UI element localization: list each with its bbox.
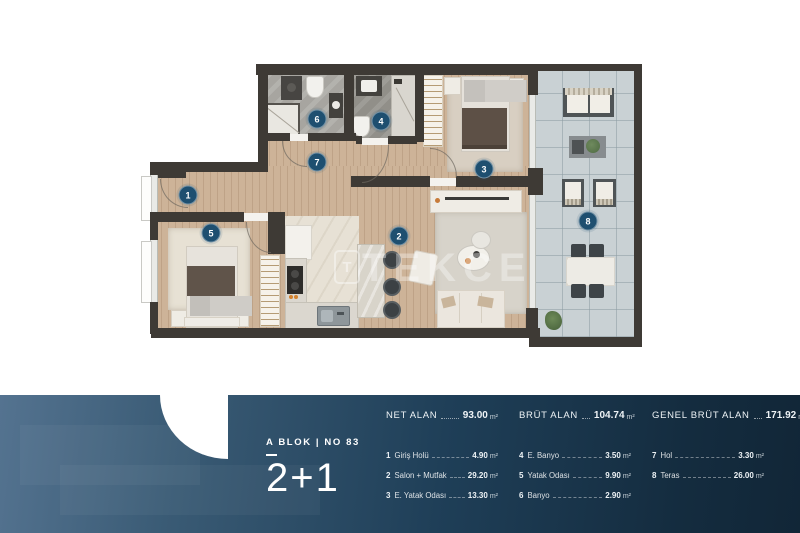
- summary-value: 93.00: [463, 410, 488, 421]
- door-threshold: [244, 213, 268, 221]
- wall: [256, 64, 535, 75]
- room-area: 9.90: [605, 471, 621, 480]
- floor-plan-page: 1 2 3 4 5 6 7 8 T TEKCE A BLOK | NO 83 2…: [0, 0, 800, 533]
- room-row: 6 Banyo 2.90 m²: [519, 488, 631, 500]
- unit-identity: A BLOK | NO 83 2+1: [266, 437, 360, 498]
- room-row: 3 E. Yatak Odası 13.30 m²: [386, 488, 498, 500]
- sofa: [437, 290, 505, 328]
- chair-texture: [596, 199, 613, 205]
- dining-chair: [571, 284, 586, 298]
- room-name: E. Yatak Odası: [394, 491, 446, 500]
- room-row: 1 Giriş Holü 4.90 m²: [386, 448, 498, 460]
- chair-cushion: [565, 182, 581, 199]
- area-table: NET ALAN 93.00 m² BRÜT ALAN 104.74 m² GE…: [386, 410, 786, 520]
- wall: [258, 64, 268, 172]
- summary-unit: m²: [490, 414, 498, 421]
- dashed-leader: [675, 457, 735, 458]
- room-badge: 4: [372, 112, 391, 131]
- room-unit: m²: [623, 453, 631, 460]
- bed-foot: [462, 145, 507, 149]
- room-number: 2: [386, 471, 390, 480]
- info-panel: A BLOK | NO 83 2+1 NET ALAN 93.00 m² BRÜ…: [0, 395, 800, 533]
- room-area: 29.20: [468, 471, 488, 480]
- room-number: 5: [519, 471, 523, 480]
- terrace-parapet: [634, 64, 642, 347]
- watermark-text: TEKCE: [362, 248, 533, 288]
- summary-gross-area: BRÜT ALAN 104.74 m²: [519, 410, 631, 421]
- entry-door-leaf: [158, 172, 186, 178]
- bed-pillows: [464, 80, 527, 102]
- room-name: Banyo: [527, 491, 549, 500]
- dining-chair: [571, 244, 586, 258]
- vanity: [356, 76, 382, 96]
- watermark-logo: T: [334, 250, 360, 284]
- wall: [344, 75, 354, 140]
- wall: [308, 133, 356, 141]
- room-badge: 5: [202, 224, 221, 243]
- outdoor-coffee-table: [569, 136, 606, 158]
- wall: [456, 176, 535, 187]
- summary-label: BRÜT ALAN: [519, 410, 578, 421]
- kitchen-sink: [317, 306, 350, 326]
- dotted-leader: [582, 418, 590, 419]
- summary-general-gross-area: GENEL BRÜT ALAN 171.92 m²: [652, 410, 782, 421]
- room-name: Yatak Odası: [527, 471, 569, 480]
- room-number: 6: [519, 491, 523, 500]
- room-area: 4.90: [472, 451, 488, 460]
- washing-machine: [281, 76, 302, 100]
- summary-value: 171.92: [766, 410, 797, 421]
- bar-stool: [383, 301, 401, 319]
- room-unit: m²: [490, 453, 498, 460]
- room-name: Salon + Mutfak: [394, 471, 446, 480]
- wall: [150, 162, 268, 172]
- outdoor-chair: [593, 179, 616, 207]
- room-area: 3.30: [738, 451, 754, 460]
- sofa-seam: [459, 293, 460, 323]
- door-threshold: [430, 178, 456, 186]
- room-badge: 6: [308, 110, 327, 129]
- wall: [150, 220, 158, 240]
- room-unit: m²: [623, 493, 631, 500]
- wall: [150, 212, 244, 222]
- faucet: [337, 312, 344, 315]
- fruit: [289, 295, 293, 299]
- shower-line: [264, 106, 299, 134]
- dashed-leader: [553, 497, 603, 498]
- console-decor: [435, 198, 440, 203]
- washer-door: [287, 83, 296, 92]
- room-badge: 2: [390, 227, 409, 246]
- room-name: Teras: [660, 471, 679, 480]
- dining-chair: [589, 284, 604, 298]
- room-badge: 3: [475, 160, 494, 179]
- wall: [388, 136, 417, 144]
- wall: [528, 168, 543, 195]
- room-row: 7 Hol 3.30 m²: [652, 448, 764, 460]
- dashed-leader: [573, 477, 602, 478]
- shower-head: [394, 79, 402, 84]
- outdoor-chair: [562, 179, 584, 207]
- room-unit: m²: [623, 473, 631, 480]
- towel-shelf: [423, 75, 443, 147]
- room-row: 8 Teras 26.00 m²: [652, 468, 764, 480]
- sofa-pillow: [441, 296, 456, 309]
- room-number: 8: [652, 471, 656, 480]
- dashed-leader: [449, 497, 465, 498]
- bed-blanket: [462, 108, 507, 146]
- window-sill: [141, 241, 152, 303]
- tv: [445, 197, 509, 200]
- summary-label: NET ALAN: [386, 410, 437, 421]
- room-badge: 1: [179, 186, 198, 205]
- room-unit: m²: [490, 473, 498, 480]
- room-number: 1: [386, 451, 390, 460]
- kitchen-shelf: [260, 255, 280, 327]
- wall: [151, 328, 540, 338]
- block-and-unit-number: A BLOK | NO 83: [266, 437, 360, 448]
- summary-net-area: NET ALAN 93.00 m²: [386, 410, 498, 421]
- dashed-leader: [683, 477, 731, 478]
- terrace-parapet: [535, 64, 642, 71]
- room-row: 2 Salon + Mutfak 29.20 m²: [386, 468, 498, 480]
- sofa-cushion: [567, 95, 588, 113]
- sink-basin: [321, 310, 333, 322]
- room-number: 7: [652, 451, 656, 460]
- master-bed: [461, 76, 510, 152]
- sofa-cushion: [590, 95, 610, 113]
- fruit-bowl: [289, 295, 299, 300]
- dining-table: [566, 257, 615, 286]
- room-name: Giriş Holü: [394, 451, 428, 460]
- room-badge: 7: [308, 153, 327, 172]
- plan-type: 2+1: [266, 458, 360, 498]
- nightstand: [444, 77, 461, 95]
- terrace-parapet: [529, 337, 642, 347]
- floor-plan: 1 2 3 4 5 6 7 8 T TEKCE: [0, 0, 800, 395]
- bed-pillows: [190, 296, 252, 316]
- wall: [268, 133, 290, 141]
- room-area: 13.30: [468, 491, 488, 500]
- room-area: 3.50: [605, 451, 621, 460]
- bed-blanket: [187, 266, 235, 296]
- window: [529, 95, 536, 168]
- room-area: 26.00: [734, 471, 754, 480]
- bed-headboard: [184, 317, 240, 327]
- room-badge: 8: [579, 212, 598, 231]
- dotted-leader: [441, 418, 458, 419]
- door-threshold: [290, 134, 308, 141]
- chair-texture: [565, 199, 581, 205]
- terrace-plant: [545, 311, 562, 330]
- fruit: [294, 295, 298, 299]
- room-row: 4 E. Banyo 3.50 m²: [519, 448, 631, 460]
- room-area: 2.90: [605, 491, 621, 500]
- outdoor-sofa: [563, 88, 614, 117]
- sofa-pillow: [477, 296, 494, 308]
- room-row: 5 Yatak Odası 9.90 m²: [519, 468, 631, 480]
- room-unit: m²: [756, 473, 764, 480]
- toilet: [306, 76, 324, 98]
- wall: [526, 308, 538, 337]
- plant-pot: [586, 139, 600, 153]
- wall: [150, 302, 158, 334]
- door-threshold: [362, 138, 388, 145]
- summary-label: GENEL BRÜT ALAN: [652, 410, 750, 421]
- kitchen-tall-cabinet: [285, 225, 312, 260]
- room-number: 4: [519, 451, 523, 460]
- burner: [291, 270, 299, 278]
- cooktop: [287, 266, 303, 294]
- room-number: 3: [386, 491, 390, 500]
- tv-console: [430, 190, 522, 213]
- dashed-leader: [562, 457, 602, 458]
- tub-line: [396, 87, 415, 121]
- chair-cushion: [596, 182, 613, 199]
- summary-unit: m²: [627, 414, 635, 421]
- sofa-back-texture: [565, 88, 612, 95]
- dotted-leader: [754, 418, 762, 419]
- room-unit: m²: [756, 453, 764, 460]
- dashed-leader: [450, 477, 465, 478]
- tray: [572, 140, 584, 154]
- summary-value: 104.74: [594, 410, 625, 421]
- burner: [291, 282, 299, 290]
- bathroom-vanity: [329, 93, 343, 118]
- dining-chair: [589, 244, 604, 258]
- bed: [186, 246, 238, 328]
- wall: [150, 162, 158, 175]
- basin: [332, 101, 340, 109]
- dashed-leader: [432, 457, 470, 458]
- room-unit: m²: [490, 493, 498, 500]
- room-name: E. Banyo: [527, 451, 559, 460]
- wall: [415, 73, 424, 142]
- basin: [361, 80, 377, 92]
- room-name: Hol: [660, 451, 672, 460]
- wall: [528, 64, 538, 95]
